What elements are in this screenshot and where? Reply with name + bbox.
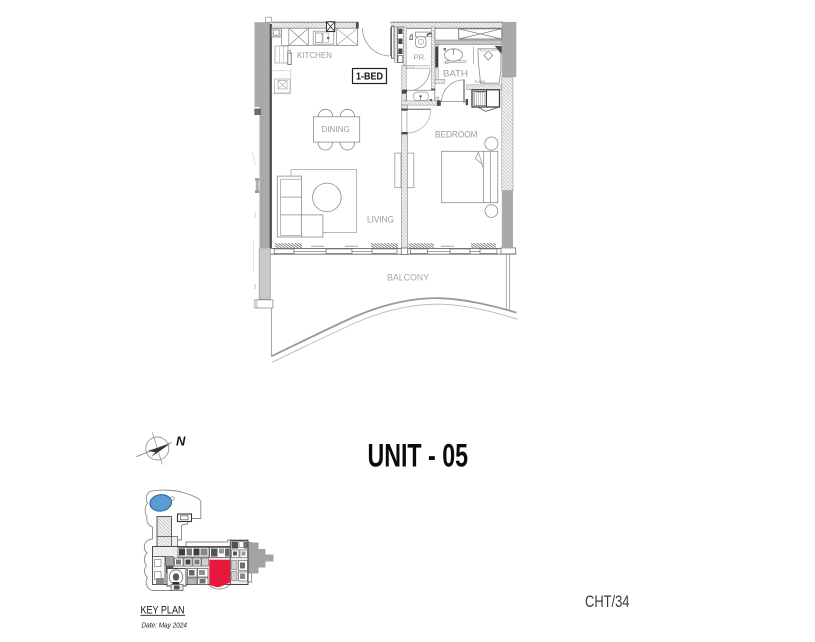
svg-text:KEY PLAN: KEY PLAN (141, 604, 185, 616)
svg-text:LIVING: LIVING (367, 215, 394, 225)
svg-text:BATH: BATH (443, 69, 468, 79)
svg-text:BALCONY: BALCONY (387, 273, 429, 283)
svg-text:Date: May 2024: Date: May 2024 (142, 620, 188, 629)
svg-text:CHT/34: CHT/34 (585, 593, 630, 611)
svg-text:R-0.62: R-0.62 (475, 80, 486, 84)
svg-text:UNIT - 05: UNIT - 05 (368, 438, 469, 474)
svg-text:BEDROOM: BEDROOM (435, 130, 478, 140)
svg-text:N: N (176, 433, 186, 448)
svg-text:1-BED: 1-BED (356, 72, 383, 83)
svg-text:DINING: DINING (321, 125, 350, 134)
svg-text:KITCHEN: KITCHEN (297, 51, 332, 60)
svg-text:PR.: PR. (413, 53, 426, 62)
